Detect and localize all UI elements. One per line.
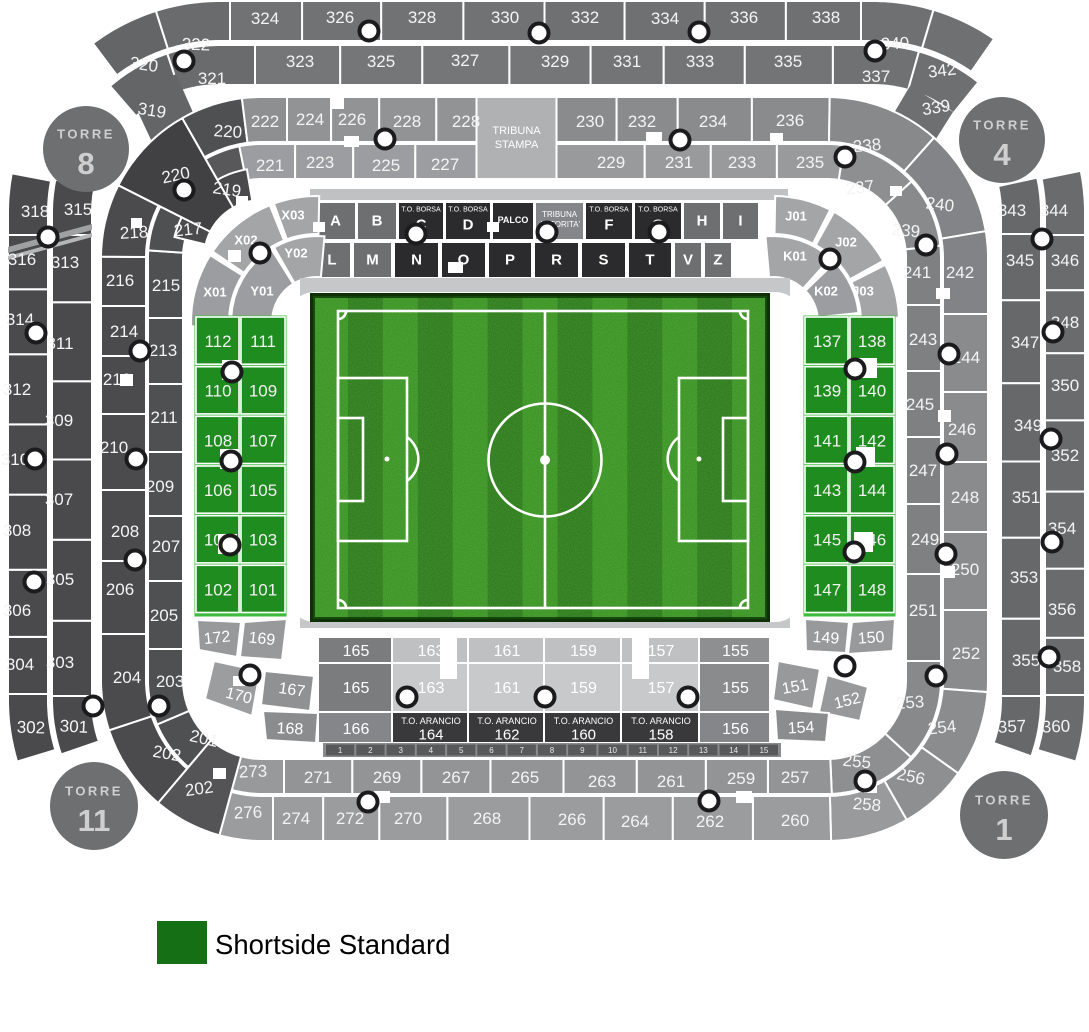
svg-text:258: 258 [852,794,882,815]
svg-text:268: 268 [473,809,501,828]
svg-text:4: 4 [429,746,434,755]
svg-text:T.O. ARANCIO: T.O. ARANCIO [554,716,614,726]
svg-text:309: 309 [45,411,73,430]
svg-text:162: 162 [494,726,519,743]
svg-text:344: 344 [1040,201,1068,220]
svg-text:105: 105 [249,481,277,500]
svg-text:D: D [463,216,474,233]
svg-text:A: A [330,212,341,229]
svg-text:269: 269 [373,768,401,787]
svg-text:316: 316 [8,250,36,269]
svg-text:318: 318 [21,202,49,221]
svg-text:332: 332 [571,8,599,27]
svg-text:225: 225 [372,156,400,175]
svg-text:324: 324 [251,9,279,28]
svg-text:145: 145 [813,531,841,550]
svg-text:T.O. ARANCIO: T.O. ARANCIO [401,716,461,726]
svg-text:330: 330 [491,8,519,27]
svg-text:157: 157 [648,680,675,697]
svg-text:148: 148 [858,580,886,599]
svg-text:161: 161 [494,643,521,660]
svg-text:8: 8 [77,146,94,181]
svg-text:207: 207 [152,537,180,556]
svg-text:264: 264 [621,812,649,831]
svg-text:158: 158 [648,726,673,743]
svg-text:TRIBUNA: TRIBUNA [492,125,541,137]
svg-text:243: 243 [909,330,937,349]
svg-text:265: 265 [511,768,539,787]
svg-text:140: 140 [858,382,886,401]
svg-text:261: 261 [657,772,685,791]
svg-text:109: 109 [249,382,277,401]
svg-text:353: 353 [1010,568,1038,587]
svg-text:246: 246 [948,420,976,439]
svg-text:257: 257 [781,768,809,787]
svg-text:155: 155 [722,643,749,660]
svg-text:143: 143 [813,481,841,500]
svg-text:204: 204 [113,668,141,687]
svg-text:326: 326 [326,8,354,27]
svg-text:312: 312 [3,380,31,399]
svg-text:165: 165 [343,680,370,697]
svg-text:230: 230 [576,112,604,131]
svg-text:325: 325 [367,52,395,71]
svg-text:TORRE: TORRE [57,127,115,142]
svg-text:M: M [366,251,379,268]
svg-text:111: 111 [250,332,276,351]
svg-text:101: 101 [249,580,277,599]
svg-text:272: 272 [336,809,364,828]
svg-text:7: 7 [519,746,524,755]
svg-text:260: 260 [781,811,809,830]
svg-text:205: 205 [150,606,178,625]
svg-text:F: F [604,216,613,233]
svg-text:J01: J01 [785,209,807,224]
svg-text:313: 313 [51,253,79,272]
svg-text:271: 271 [304,768,332,787]
svg-text:149: 149 [812,629,840,648]
svg-text:9: 9 [580,746,585,755]
svg-text:320: 320 [129,53,160,76]
svg-text:231: 231 [665,153,693,172]
svg-text:321: 321 [198,69,226,88]
svg-text:157: 157 [648,643,675,660]
svg-text:169: 169 [248,629,276,649]
svg-text:K01: K01 [783,249,807,264]
svg-text:345: 345 [1006,251,1034,270]
svg-text:217: 217 [173,219,203,241]
svg-text:323: 323 [286,52,314,71]
svg-text:160: 160 [571,726,596,743]
svg-text:226: 226 [338,110,366,129]
svg-text:228: 228 [393,112,421,131]
svg-text:214: 214 [110,322,138,341]
svg-text:N: N [411,251,422,268]
svg-text:307: 307 [45,490,73,509]
svg-text:P: P [505,251,515,268]
svg-text:T: T [645,251,654,268]
svg-text:155: 155 [722,680,749,697]
svg-text:209: 209 [146,477,174,496]
svg-text:159: 159 [570,643,597,660]
svg-text:K02: K02 [814,284,838,299]
svg-text:T.O. ARANCIO: T.O. ARANCIO [631,716,691,726]
svg-text:168: 168 [276,720,304,738]
svg-text:329: 329 [541,52,569,71]
svg-text:PALCO: PALCO [498,215,529,225]
svg-text:TORRE: TORRE [65,784,123,799]
svg-text:315: 315 [64,200,92,219]
svg-text:138: 138 [858,332,886,351]
svg-text:T.O. BORSA: T.O. BORSA [638,207,678,214]
svg-text:249: 249 [911,530,939,549]
svg-text:L: L [327,251,336,268]
svg-text:B: B [372,212,383,229]
svg-text:5: 5 [459,746,464,755]
svg-text:13: 13 [699,746,708,755]
svg-text:262: 262 [696,812,724,831]
svg-text:276: 276 [234,803,263,823]
svg-text:250: 250 [951,560,979,579]
svg-text:347: 347 [1011,333,1039,352]
svg-text:T.O. BORSA: T.O. BORSA [448,207,488,214]
svg-text:259: 259 [727,769,755,788]
svg-text:202: 202 [184,777,215,800]
svg-text:234: 234 [699,112,727,131]
svg-text:267: 267 [442,768,470,787]
svg-text:357: 357 [997,716,1026,736]
svg-text:213: 213 [149,341,177,360]
svg-text:TORRE: TORRE [975,793,1033,808]
svg-text:137: 137 [813,332,841,351]
svg-text:144: 144 [858,481,886,500]
svg-text:334: 334 [651,9,679,28]
svg-text:351: 351 [1012,488,1040,507]
svg-text:2: 2 [368,746,373,755]
svg-text:223: 223 [306,153,334,172]
svg-text:346: 346 [1051,251,1079,270]
svg-text:163: 163 [418,680,445,697]
svg-text:139: 139 [813,382,841,401]
svg-text:14: 14 [729,746,738,755]
svg-text:106: 106 [204,481,232,500]
svg-text:X03: X03 [281,208,304,223]
svg-text:328: 328 [408,8,436,27]
svg-text:I: I [738,212,742,229]
svg-text:4: 4 [993,137,1011,172]
svg-text:239: 239 [891,220,921,241]
svg-text:305: 305 [46,570,74,589]
svg-text:303: 303 [46,653,74,672]
svg-text:327: 327 [451,51,479,70]
svg-text:236: 236 [776,111,804,130]
svg-text:273: 273 [239,762,268,782]
svg-text:233: 233 [728,153,756,172]
svg-text:110: 110 [204,382,231,401]
svg-text:15: 15 [759,746,768,755]
svg-text:229: 229 [597,153,625,172]
svg-text:237: 237 [845,176,875,198]
svg-text:242: 242 [946,263,974,282]
svg-text:248: 248 [951,488,979,507]
svg-text:306: 306 [3,601,31,620]
svg-text:R: R [551,251,562,268]
svg-text:TORRE: TORRE [973,118,1031,133]
svg-text:STAMPA: STAMPA [495,139,539,151]
svg-text:343: 343 [998,201,1026,220]
svg-text:342: 342 [927,59,957,81]
svg-text:Z: Z [713,251,722,268]
svg-text:227: 227 [431,155,459,174]
svg-text:103: 103 [249,531,277,550]
svg-text:147: 147 [813,580,841,599]
svg-text:263: 263 [588,772,616,791]
svg-text:360: 360 [1042,717,1071,737]
svg-text:311: 311 [46,334,73,353]
svg-text:154: 154 [787,719,815,737]
svg-text:1: 1 [995,812,1012,847]
svg-text:331: 331 [613,52,641,71]
svg-text:Shortside Standard: Shortside Standard [215,929,450,960]
svg-text:8: 8 [550,746,555,755]
svg-text:165: 165 [343,643,370,660]
svg-text:206: 206 [106,580,134,599]
svg-text:H: H [697,212,708,229]
svg-text:247: 247 [909,461,937,480]
svg-text:Y01: Y01 [250,284,273,299]
svg-text:338: 338 [812,8,840,27]
svg-text:224: 224 [296,110,324,129]
svg-text:221: 221 [256,156,284,175]
svg-text:10: 10 [608,746,617,755]
svg-text:3: 3 [398,746,403,755]
svg-text:253: 253 [895,692,925,713]
svg-text:T.O. BORSA: T.O. BORSA [401,207,441,214]
svg-text:150: 150 [857,629,885,648]
svg-text:252: 252 [952,644,980,663]
svg-text:12: 12 [669,746,678,755]
svg-text:159: 159 [570,680,597,697]
svg-text:102: 102 [204,580,232,599]
svg-text:166: 166 [343,721,370,738]
svg-text:235: 235 [796,153,824,172]
svg-text:337: 337 [862,67,890,86]
svg-text:228: 228 [452,112,480,131]
svg-text:350: 350 [1051,376,1079,395]
svg-text:161: 161 [494,680,521,697]
svg-text:172: 172 [203,628,231,648]
svg-text:11: 11 [639,746,648,755]
svg-text:X01: X01 [203,285,226,300]
svg-text:301: 301 [59,716,88,736]
svg-text:107: 107 [249,431,277,450]
svg-text:336: 336 [730,8,758,27]
svg-text:255: 255 [842,751,872,773]
svg-text:6: 6 [489,746,494,755]
svg-text:V: V [683,251,693,268]
svg-text:215: 215 [152,276,180,295]
svg-text:210: 210 [100,438,128,457]
svg-text:1: 1 [338,746,343,755]
svg-text:349: 349 [1014,416,1042,435]
svg-text:274: 274 [282,809,310,828]
svg-text:356: 356 [1048,600,1076,619]
svg-text:112: 112 [204,332,231,351]
svg-text:T.O. BORSA: T.O. BORSA [589,207,629,214]
svg-text:335: 335 [774,52,802,71]
svg-text:270: 270 [394,809,422,828]
svg-text:222: 222 [251,112,279,131]
svg-text:251: 251 [909,601,937,620]
svg-text:241: 241 [903,263,931,282]
svg-text:TRIBUNA: TRIBUNA [542,210,578,219]
svg-text:238: 238 [852,135,882,156]
svg-text:302: 302 [16,718,45,738]
svg-text:156: 156 [722,721,749,738]
svg-text:240: 240 [925,193,955,215]
svg-text:304: 304 [6,655,34,674]
svg-text:J02: J02 [835,235,857,250]
svg-text:208: 208 [111,522,139,541]
svg-text:S: S [598,251,608,268]
svg-text:333: 333 [686,52,714,71]
svg-text:254: 254 [927,717,957,739]
svg-text:266: 266 [558,810,586,829]
svg-text:Y02: Y02 [284,246,307,261]
svg-text:203: 203 [156,672,184,691]
svg-text:216: 216 [106,271,134,290]
svg-text:141: 141 [813,431,841,450]
svg-text:308: 308 [3,521,31,540]
svg-text:T.O. ARANCIO: T.O. ARANCIO [477,716,537,726]
svg-text:232: 232 [628,112,656,131]
svg-text:211: 211 [150,408,177,427]
svg-text:245: 245 [906,395,934,414]
svg-text:108: 108 [204,431,232,450]
svg-text:11: 11 [78,803,111,838]
svg-text:355: 355 [1012,651,1040,670]
svg-text:164: 164 [418,726,443,743]
svg-text:220: 220 [213,121,243,142]
